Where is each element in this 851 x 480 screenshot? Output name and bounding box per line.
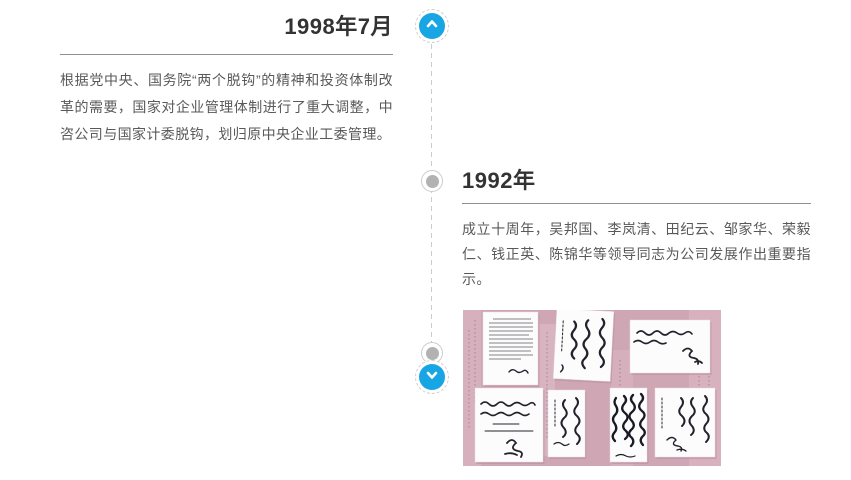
event-title: 1998年7月 — [60, 13, 393, 40]
event-divider — [60, 54, 393, 55]
event-entry-1998: 1998年7月 根据党中央、国务院“两个脱钩”的精神和投资体制改革的需要，国家对… — [60, 13, 393, 148]
event-body-text: 根据党中央、国务院“两个脱钩”的精神和投资体制改革的需要，国家对企业管理体制进行… — [60, 67, 393, 148]
timeline-page: 1998年7月 根据党中央、国务院“两个脱钩”的精神和投资体制改革的需要，国家对… — [0, 0, 851, 480]
chevron-up-icon — [425, 17, 439, 36]
timeline-dashed-line — [431, 26, 432, 377]
timeline-down-ring — [415, 360, 449, 394]
event-body-text: 成立十周年，吴邦国、李岚清、田纪云、邹家华、荣毅仁、钱正英、陈锦华等领导同志为公… — [462, 217, 811, 292]
timeline-up-ring — [415, 9, 449, 43]
chevron-down-icon — [425, 368, 439, 387]
inscriptions-photo — [463, 310, 721, 466]
timeline-node-dot — [426, 175, 439, 188]
timeline-node-marker — [421, 170, 443, 192]
event-entry-1992: 1992年 成立十周年，吴邦国、李岚清、田纪云、邹家华、荣毅仁、钱正英、陈锦华等… — [462, 167, 811, 292]
timeline-down-button[interactable] — [419, 364, 445, 390]
timeline-node-dot — [426, 347, 439, 360]
event-title: 1992年 — [462, 167, 811, 194]
timeline-up-button[interactable] — [419, 13, 445, 39]
event-divider — [462, 203, 811, 204]
